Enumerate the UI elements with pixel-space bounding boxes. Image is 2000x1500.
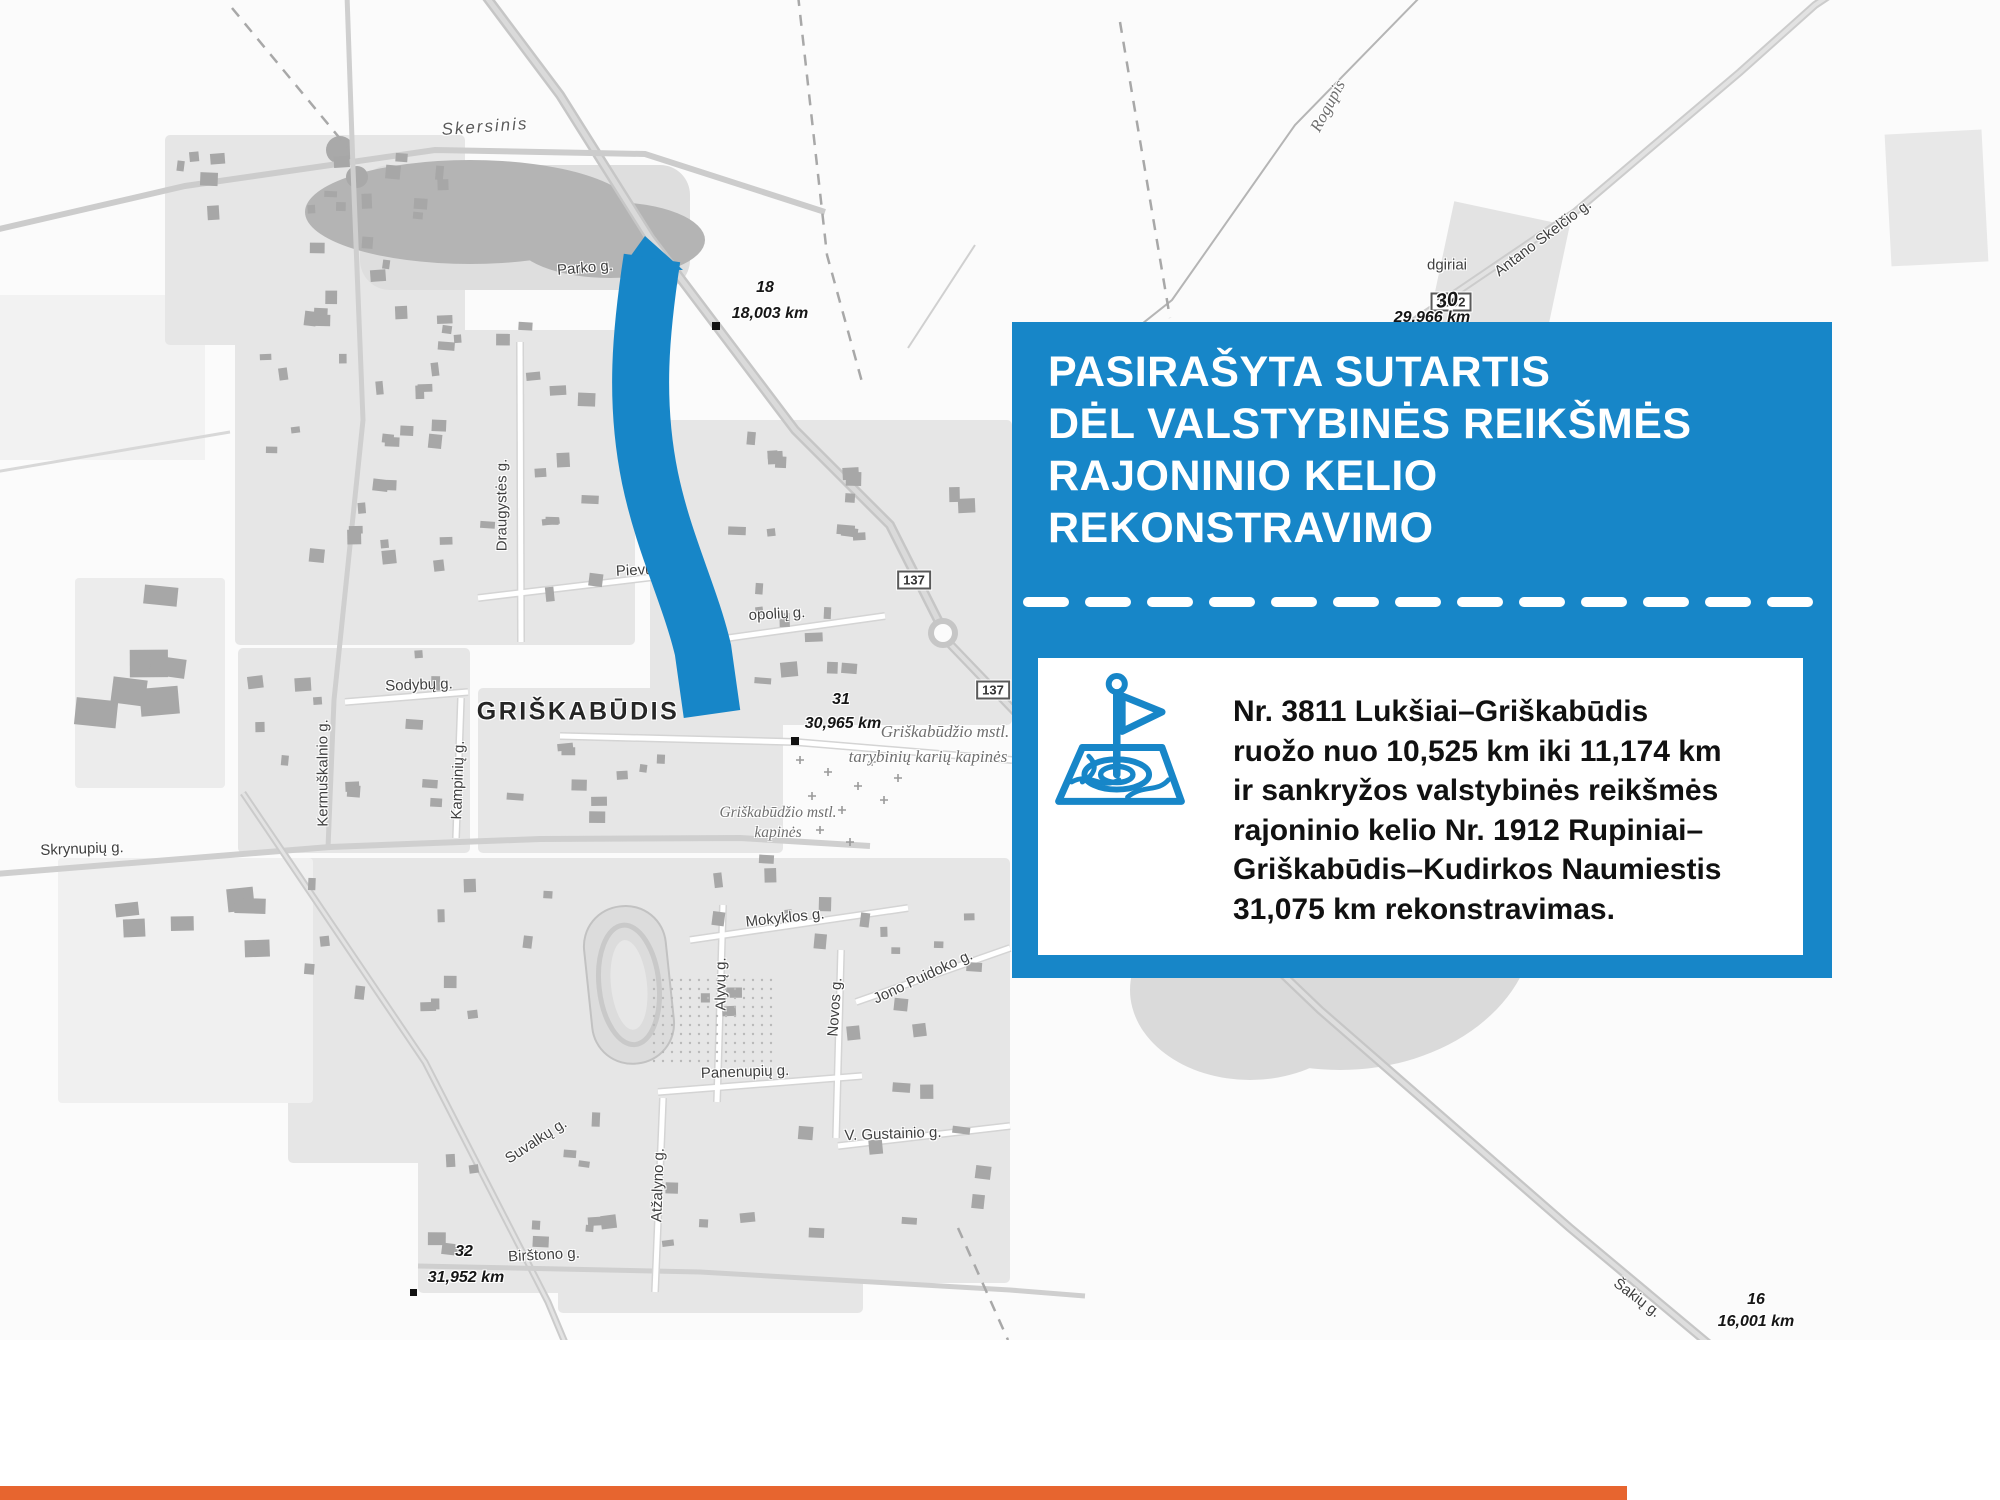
km-marker-18-distance: 18,003 km	[732, 305, 809, 323]
street-label-topoliu: opolių g.	[748, 604, 806, 624]
town-name-label: GRIŠKABŪDIS	[477, 698, 680, 727]
km-marker-32-distance: 31,952 km	[428, 1269, 505, 1287]
street-label-panenupiu: Panenupių g.	[701, 1062, 790, 1082]
street-label-parko: Parko g.	[556, 257, 613, 279]
street-label-draugystes: Draugystės g.	[494, 459, 511, 552]
card-body-line5: Griškabūdis–Kudirkos Naumiestis	[1233, 850, 1722, 890]
cemetery2-label-line2: kapinės	[754, 824, 801, 842]
km-marker-31-dot	[791, 737, 799, 745]
card-body-text: Nr. 3811 Lukšiai–Griškabūdis ruožo nuo 1…	[1233, 692, 1722, 929]
street-label-skrynupiu: Skrynupių g.	[40, 839, 124, 859]
dashed-divider	[1012, 592, 1832, 612]
street-label-atzalyno: Atžalyno g.	[648, 1148, 668, 1223]
announcement-banner: PASIRAŠYTA SUTARTIS DĖL VALSTYBINĖS REIK…	[1012, 322, 1832, 978]
km-marker-16-distance: 16,001 km	[1718, 1313, 1795, 1331]
street-label-antano-skelcio: Antano Skelčio g.	[1491, 196, 1594, 280]
cemetery2-label-line1: Griškabūdžio mstl.	[719, 804, 836, 822]
km-marker-16-number: 16	[1747, 1291, 1765, 1309]
street-label-suvalku: Suvalkų g.	[502, 1115, 570, 1167]
card-body-line1: Nr. 3811 Lukšiai–Griškabūdis	[1233, 692, 1722, 732]
cemetery-label-line2: tarybinių karių kapinės	[849, 747, 1008, 767]
banner-title-line2: DĖL VALSTYBINĖS REIKŠMĖS	[1048, 398, 1692, 450]
street-label-sodybu: Sodybų g.	[385, 675, 453, 694]
banner-title-line1: PASIRAŠYTA SUTARTIS	[1048, 346, 1692, 398]
km-marker-18-number: 18	[756, 279, 774, 297]
infographic-root: Skersinis Parko g. Rogupis Antano Skelči…	[0, 0, 2000, 1500]
street-label-alyvu: Alyvų g.	[713, 957, 730, 1010]
bottom-accent-bar	[0, 1486, 1627, 1500]
place-label-dgiriai: dgiriai	[1427, 257, 1467, 274]
street-label-birstono: Birštono g.	[508, 1245, 581, 1266]
stream-label-rogupis: Rogupis	[1306, 77, 1350, 136]
flag-map-marker-icon	[1050, 670, 1190, 810]
km-marker-31-distance: 30,965 km	[805, 715, 882, 733]
banner-title: PASIRAŠYTA SUTARTIS DĖL VALSTYBINĖS REIK…	[1048, 346, 1692, 554]
road-shield-137: 137	[897, 571, 931, 590]
card-body-line2: ruožo nuo 10,525 km iki 11,174 km	[1233, 732, 1722, 772]
street-label-kampiniu: Kampinių g.	[448, 740, 468, 820]
street-label-pievu: Pievų g.	[615, 560, 670, 580]
street-label-sakiu: Šakių g.	[1610, 1275, 1664, 1321]
banner-title-line3: RAJONINIO KELIO	[1048, 450, 1692, 502]
street-label-skersinis: Skersinis	[441, 114, 529, 140]
card-body-line4: rajoninio kelio Nr. 1912 Rupiniai–	[1233, 811, 1722, 851]
street-label-mokyklos: Mokyklos g.	[745, 905, 826, 930]
street-label-jono-puidoko: Jono Puidoko g.	[871, 947, 976, 1008]
details-card: Nr. 3811 Lukšiai–Griškabūdis ruožo nuo 1…	[1038, 658, 1803, 955]
footer: LIETUVOS AUTOMOBILIŲ KELIŲ DIREKCIJA	[0, 1340, 2000, 1487]
street-label-kermuskalnio: Kermuškalnio g.	[315, 719, 332, 827]
cemetery-label-line1: Griškabūdžio mstl.	[881, 722, 1009, 742]
km-marker-31-number: 31	[832, 691, 850, 709]
street-label-novos: Novos g.	[824, 977, 845, 1037]
km-marker-32-number: 32	[455, 1243, 473, 1261]
street-label-gustainio: V. Gustainio g.	[844, 1124, 942, 1144]
km-marker-32-dot	[410, 1289, 417, 1296]
road-shield-137-2: 137	[976, 681, 1010, 700]
banner-title-line4: REKONSTRAVIMO	[1048, 502, 1692, 554]
km-marker-18-dot	[712, 322, 720, 330]
card-body-line6: 31,075 km rekonstravimas.	[1233, 890, 1722, 930]
card-body-line3: ir sankryžos valstybinės reikšmės	[1233, 771, 1722, 811]
